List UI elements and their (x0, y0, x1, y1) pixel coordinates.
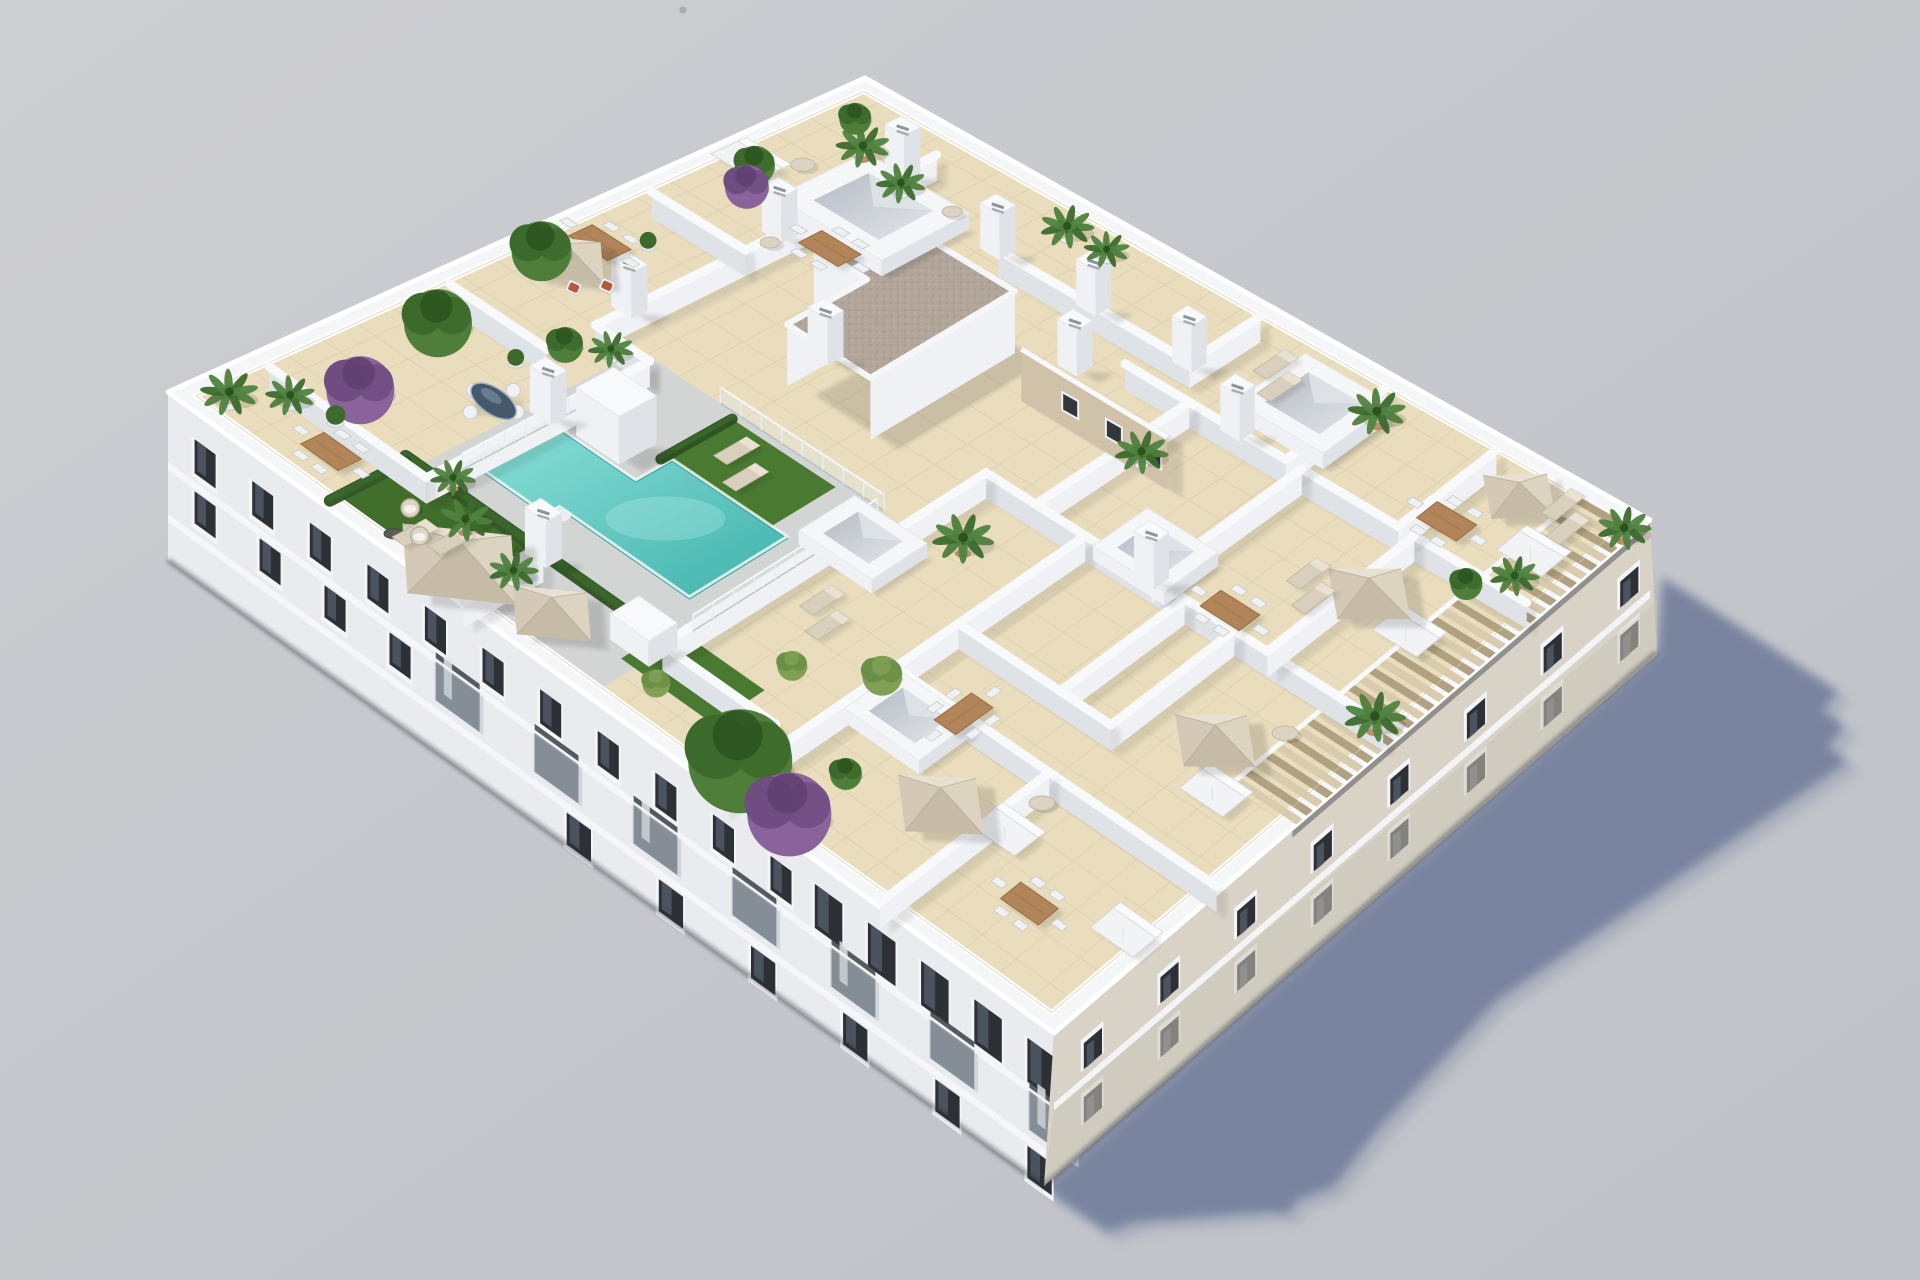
window-glass (658, 775, 666, 811)
window-glass (601, 733, 609, 769)
foliage (847, 103, 862, 118)
foliage (767, 773, 807, 813)
window-glass (924, 963, 935, 1011)
chimney-face-se (546, 513, 562, 568)
window-glass (1030, 1040, 1041, 1088)
palm-crown (1372, 407, 1381, 416)
palm-crown (450, 474, 457, 481)
chair (463, 405, 477, 419)
window-glass (774, 858, 782, 894)
window-glass (198, 441, 206, 477)
foliage (735, 165, 756, 186)
chair (506, 383, 520, 397)
window-glass (428, 608, 437, 644)
side-table (1272, 726, 1298, 740)
foliage (1458, 568, 1473, 583)
pot-foliage (507, 349, 524, 366)
foliage (713, 710, 763, 760)
window-glass (486, 650, 495, 686)
palm-crown (1063, 222, 1071, 230)
palm-crown (897, 179, 905, 187)
foliage (526, 222, 555, 251)
pot-foliage (640, 232, 657, 249)
chair-cushion (414, 533, 426, 541)
foliage (342, 357, 375, 390)
window-glass (543, 691, 551, 727)
foliage (649, 670, 662, 683)
foliage (556, 327, 573, 344)
window-glass (977, 1001, 988, 1049)
foliage (420, 290, 453, 323)
foliage (744, 146, 763, 165)
palm-crown (461, 515, 469, 523)
palm-crown (1620, 524, 1628, 532)
apartment-building-aerial-render: Aerial 3D architectural rendering: white… (0, 0, 1920, 1280)
render-artifact (680, 7, 687, 14)
window-glass (255, 483, 263, 519)
palm-crown (1370, 711, 1380, 721)
window-glass (871, 924, 882, 972)
palm-crown (1137, 447, 1145, 455)
side-table (1029, 796, 1055, 810)
palm-crown (286, 391, 294, 399)
water-highlight (605, 497, 725, 541)
foliage (837, 758, 852, 773)
palm-crown (859, 141, 867, 149)
foliage (872, 656, 891, 675)
pouf (760, 237, 780, 248)
palm-crown (510, 566, 518, 574)
chimney-face-se (828, 311, 844, 366)
window-glass (818, 886, 829, 934)
chair-cushion (404, 505, 416, 513)
side-table (791, 158, 815, 171)
palm-crown (607, 345, 614, 352)
foliage (784, 651, 798, 665)
chimney-face-se (631, 265, 647, 319)
palm-crown (1103, 246, 1110, 253)
window-glass (313, 525, 321, 561)
palm-crown (225, 387, 234, 396)
chimney-face-se (781, 189, 797, 243)
render-canvas: Aerial 3D architectural rendering: white… (0, 0, 1920, 1280)
palm-crown (1511, 572, 1519, 580)
chimney-face-se (550, 371, 566, 426)
window-glass (370, 566, 378, 602)
palm-crown (958, 533, 968, 543)
window-glass (716, 816, 724, 852)
side-table (942, 206, 962, 217)
pot-foliage (326, 405, 346, 425)
